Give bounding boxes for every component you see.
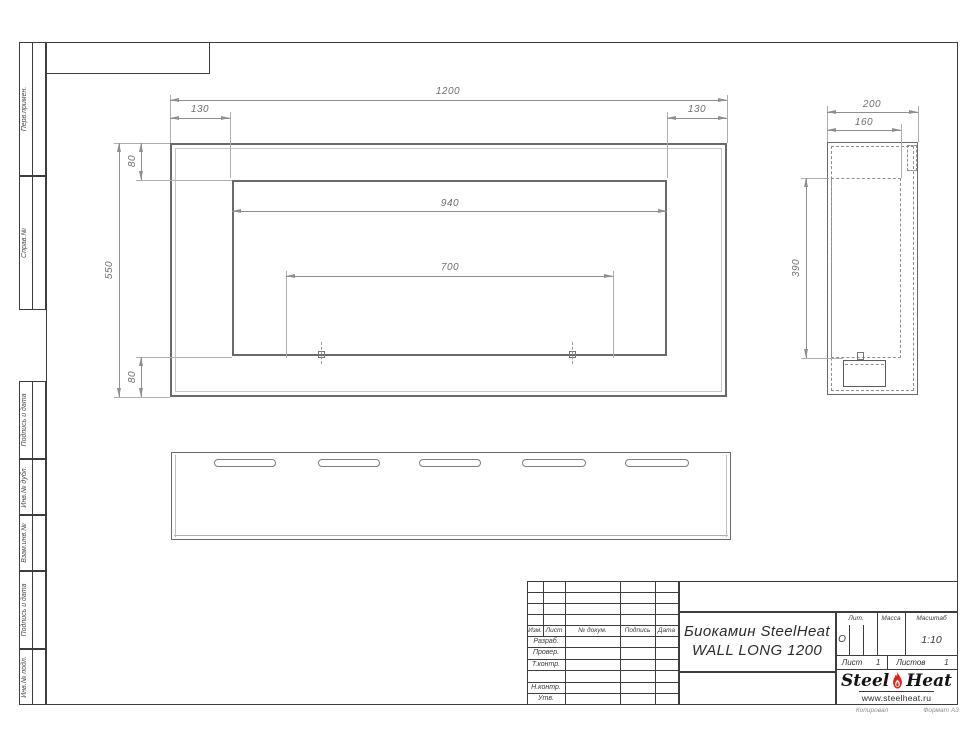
lit-label: Лит.: [835, 612, 877, 625]
dim-arrow: [286, 274, 295, 278]
dim-label-left-offset: 130: [180, 104, 220, 116]
stamp-label: Подпись и дата: [20, 571, 30, 649]
dim-arrow: [604, 274, 613, 278]
title-block-line: [565, 581, 566, 705]
stamp-label: Взам.инв.№: [20, 515, 30, 571]
lit-value: О: [835, 625, 849, 655]
stamp-label: Справ.№: [20, 176, 30, 310]
dim-label-depth: 200: [852, 99, 892, 111]
dim-arrow: [658, 209, 667, 213]
extension-line: [286, 271, 287, 358]
col-doc: № докум.: [565, 625, 620, 636]
dimension-line: [827, 112, 918, 113]
sheet-cell: Лист 1: [835, 655, 887, 669]
dimension-line: [170, 100, 727, 101]
extension-line: [230, 112, 231, 178]
col-sign: Подпись: [620, 625, 655, 636]
extension-line: [901, 124, 902, 178]
dim-label-inner-depth: 160: [844, 117, 884, 129]
dim-arrow: [718, 98, 727, 102]
vent-slot: [214, 459, 276, 467]
dim-label-inner-span: 700: [430, 262, 470, 274]
dim-arrow: [117, 143, 121, 152]
extension-line: [801, 358, 843, 359]
extension-line: [667, 112, 668, 178]
stamp-label: Подпись и дата: [20, 381, 30, 459]
dim-label-top-offset: 80: [127, 146, 139, 176]
clip-centerline: [572, 342, 573, 364]
burner-hidden-line: [845, 364, 884, 365]
title-block-line: [527, 603, 678, 604]
title-block-line: [527, 614, 678, 615]
stamp-label: Инв.№ дубл.: [20, 459, 30, 515]
burner-notch: [857, 352, 864, 360]
extension-line: [918, 106, 919, 142]
dim-arrow: [827, 110, 836, 114]
dim-arrow: [221, 116, 230, 120]
row-developed: Разраб.: [527, 636, 565, 647]
row-n-control: Н.контр.: [527, 682, 565, 693]
bottom-view-fold-line: [174, 535, 728, 536]
dim-arrow: [804, 349, 808, 358]
dim-arrow: [117, 388, 121, 397]
sheets-cell: Листов 1: [887, 655, 958, 669]
row-t-control: Т.контр.: [527, 659, 565, 670]
product-name-line2: WALL LONG 1200: [692, 641, 822, 660]
col-list: Лист: [543, 625, 565, 636]
logo-word-steel: Steel: [841, 673, 889, 690]
flame-icon: [890, 671, 905, 690]
format-note: Формат А3: [911, 707, 970, 714]
dim-arrow: [827, 128, 836, 132]
title-block-line: [678, 671, 835, 673]
bottom-view-fold-line: [175, 455, 176, 537]
stamp-label: Инв.№ подл.: [20, 649, 30, 705]
stamp-column-divider: [32, 42, 33, 310]
product-name: Биокамин SteelHeat WALL LONG 1200: [679, 612, 835, 670]
dim-label-right-offset: 130: [677, 104, 717, 116]
logo-url: www.steelheat.ru: [859, 691, 935, 703]
dim-arrow: [139, 171, 143, 180]
dim-label-overall-height: 550: [104, 250, 116, 290]
extension-line: [114, 397, 170, 398]
steelheat-logo: Steel Heat www.steelheat.ru: [836, 670, 957, 704]
title-block-line: [527, 670, 678, 671]
product-name-line1: Биокамин SteelHeat: [684, 622, 830, 641]
dim-arrow: [892, 128, 901, 132]
scale-label: Масштаб: [905, 612, 958, 625]
dimension-line: [827, 130, 901, 131]
vent-slot: [419, 459, 481, 467]
dim-label-bottom-offset: 80: [127, 362, 139, 392]
dim-arrow: [139, 388, 143, 397]
sheet-number: 1: [876, 658, 880, 667]
stamp-label: Перв.примен.: [20, 42, 30, 176]
sheets-total: 1: [944, 658, 948, 667]
bottom-view-fold-line: [726, 455, 727, 537]
copied-note: Копировал: [842, 707, 902, 714]
col-izm: Изм.: [527, 625, 543, 636]
scale-value: 1:10: [905, 625, 958, 655]
dim-label-opening-width: 940: [430, 198, 470, 210]
extension-line: [727, 95, 728, 143]
side-view-bracket: [907, 145, 917, 171]
dim-arrow: [139, 143, 143, 152]
row-approved: Утв.: [527, 693, 565, 704]
dim-arrow: [170, 98, 179, 102]
vent-slot: [625, 459, 689, 467]
title-block-line: [863, 625, 864, 655]
clip-centerline: [321, 342, 322, 364]
extension-line: [136, 357, 232, 358]
dimension-line: [119, 143, 120, 397]
dimension-line: [806, 178, 807, 358]
sheet-label: Лист: [842, 658, 863, 667]
dimension-line: [286, 276, 613, 277]
title-block-line: [655, 581, 656, 705]
dim-arrow: [170, 116, 179, 120]
vent-slot: [522, 459, 586, 467]
dim-arrow: [804, 178, 808, 187]
title-block-line: [849, 625, 850, 655]
row-checked: Провер.: [527, 647, 565, 658]
top-left-stamp-box: [46, 42, 210, 74]
vent-slot: [318, 459, 380, 467]
mass-label: Масса: [877, 612, 905, 625]
side-view-chamber-hidden-line: [831, 178, 901, 358]
dim-label-overall-width: 1200: [428, 86, 468, 98]
extension-line: [613, 271, 614, 358]
dim-arrow: [667, 116, 676, 120]
logo-wordmark: Steel Heat: [841, 671, 952, 690]
drawing-sheet: { "drawing": { "stamp_column": { "top_bl…: [0, 0, 970, 749]
stamp-column-divider: [32, 381, 33, 705]
logo-word-heat: Heat: [906, 673, 952, 690]
dim-label-inner-height: 390: [791, 248, 803, 288]
extension-line: [136, 180, 232, 181]
sheets-label: Листов: [896, 658, 925, 667]
col-date: Дата: [655, 625, 678, 636]
dim-arrow: [232, 209, 241, 213]
dim-arrow: [718, 116, 727, 120]
dim-arrow: [909, 110, 918, 114]
title-block-line: [620, 581, 621, 705]
title-block-line: [527, 592, 678, 593]
dimension-line: [232, 211, 667, 212]
dim-arrow: [139, 357, 143, 366]
